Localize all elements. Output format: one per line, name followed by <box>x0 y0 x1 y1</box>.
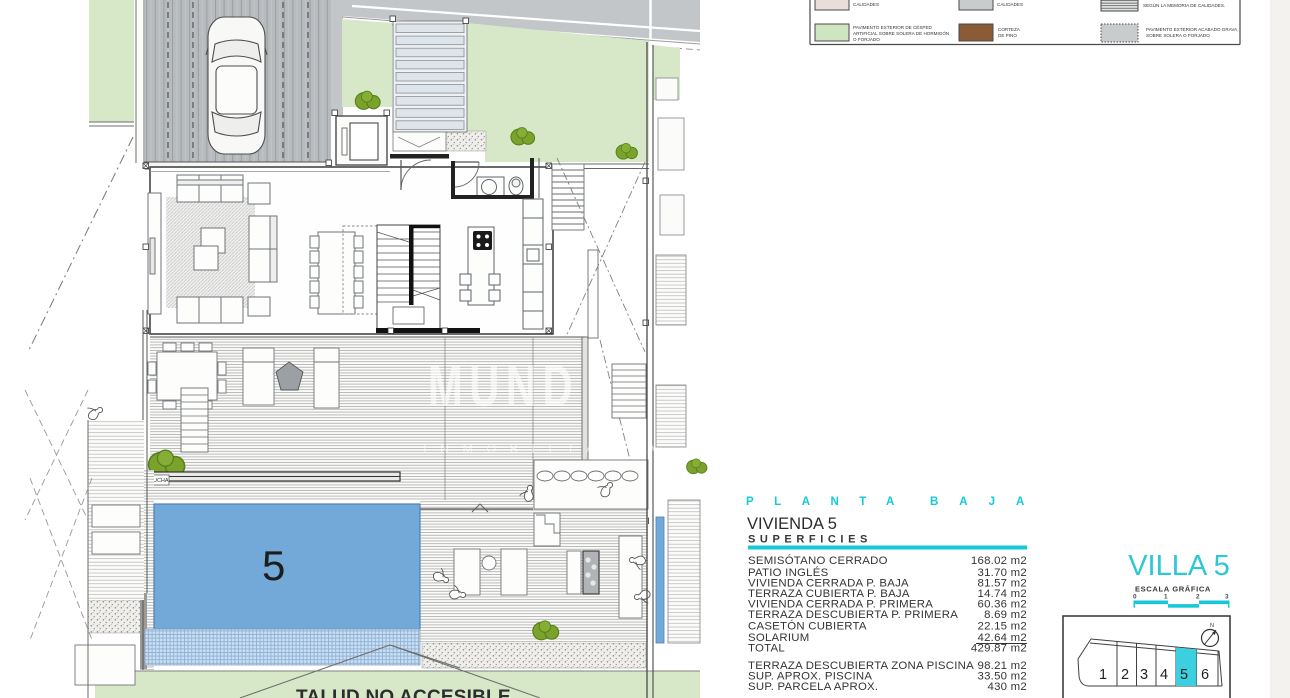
svg-text:SOBRE SOLERA O FORJADO: SOBRE SOLERA O FORJADO <box>1146 33 1210 38</box>
svg-text:CALIDADES: CALIDADES <box>997 2 1023 7</box>
svg-text:SUP. PARCELA APROX.: SUP. PARCELA APROX. <box>748 681 878 693</box>
svg-text:DE PINO: DE PINO <box>998 33 1017 38</box>
svg-text:CORTEZA: CORTEZA <box>998 27 1021 32</box>
svg-text:3: 3 <box>1140 667 1148 683</box>
svg-text:ARTIFICIAL SOBRE SOLERA DE HOR: ARTIFICIAL SOBRE SOLERA DE HORMIGÓN <box>853 30 949 36</box>
svg-text:SEMISÓTANO CERRADO: SEMISÓTANO CERRADO <box>748 554 888 567</box>
svg-text:2: 2 <box>1121 667 1129 683</box>
svg-text:PAVIMENTO EXTERIOR ACABADO GRA: PAVIMENTO EXTERIOR ACABADO GRAVA, <box>1146 27 1239 32</box>
svg-text:O FORJADO: O FORJADO <box>853 37 880 42</box>
svg-text:ESCALA GRÁFICA: ESCALA GRÁFICA <box>1135 585 1211 594</box>
svg-text:SUPERFICIES: SUPERFICIES <box>748 534 872 546</box>
svg-text:MUND: MUND <box>428 353 579 418</box>
svg-text:22.15 m2: 22.15 m2 <box>978 621 1028 633</box>
svg-text:6: 6 <box>1201 667 1209 683</box>
svg-text:168.02 m2: 168.02 m2 <box>971 555 1027 567</box>
svg-text:BAJA: BAJA <box>930 496 1045 508</box>
svg-text:8.69 m2: 8.69 m2 <box>984 609 1027 621</box>
svg-text:PLANTA: PLANTA <box>746 496 915 508</box>
svg-text:5: 5 <box>1180 667 1188 683</box>
svg-text:0: 0 <box>1133 594 1137 601</box>
svg-text:TALUD NO ACCESIBLE: TALUD NO ACCESIBLE <box>296 687 511 698</box>
svg-text:INMOBILIARIA: INMOBILIARIA <box>423 442 669 456</box>
svg-text:PAVIMENTO EXTERIOR DE CÉSPED: PAVIMENTO EXTERIOR DE CÉSPED <box>853 24 933 30</box>
svg-text:TERRAZA DESCUBIERTA P. PRIMERA: TERRAZA DESCUBIERTA P. PRIMERA <box>748 609 958 621</box>
svg-text:CASETÓN CUBIERTA: CASETÓN CUBIERTA <box>748 620 867 633</box>
svg-text:2: 2 <box>1196 594 1200 601</box>
svg-text:1: 1 <box>1099 667 1107 683</box>
svg-text:430 m2: 430 m2 <box>988 681 1028 693</box>
svg-text:3: 3 <box>1225 594 1229 601</box>
svg-text:4: 4 <box>1160 667 1168 683</box>
svg-text:TOTAL: TOTAL <box>748 643 785 655</box>
svg-text:5: 5 <box>262 542 285 589</box>
svg-text:SEGÚN LA MEMORIA DE CALIDADES.: SEGÚN LA MEMORIA DE CALIDADES. <box>1143 2 1225 8</box>
svg-text:N: N <box>1210 623 1214 629</box>
svg-text:CALIDADES: CALIDADES <box>853 2 879 7</box>
svg-text:VILLA 5: VILLA 5 <box>1128 550 1230 582</box>
svg-text:1: 1 <box>1164 594 1168 601</box>
svg-text:429.87 m2: 429.87 m2 <box>971 643 1027 655</box>
svg-text:VIVIENDA 5: VIVIENDA 5 <box>747 515 837 533</box>
